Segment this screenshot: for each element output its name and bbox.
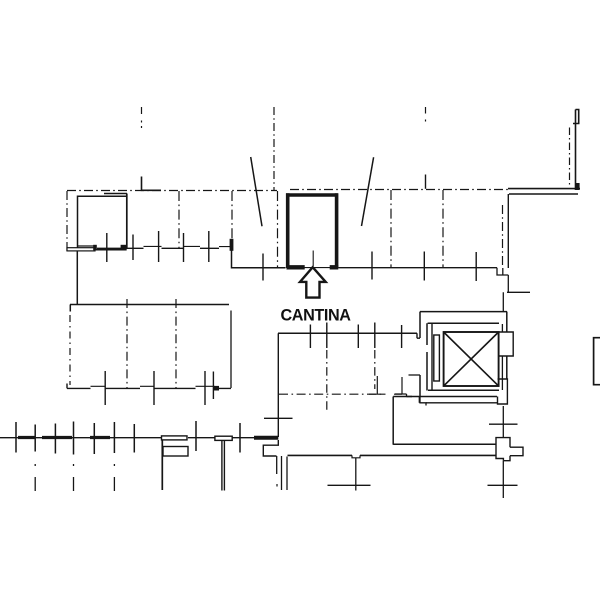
svg-text:CANTINA: CANTINA xyxy=(281,307,352,325)
